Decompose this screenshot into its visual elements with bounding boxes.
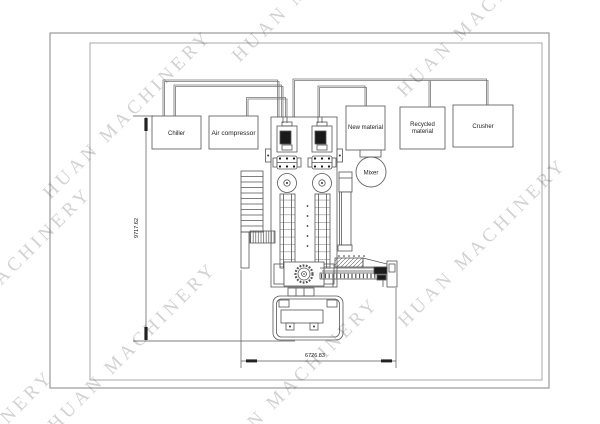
side-column bbox=[338, 172, 352, 251]
pipe-chiller-b2 bbox=[176, 87, 284, 118]
recycled-material-label-line2: material bbox=[412, 129, 433, 135]
machine-base bbox=[273, 288, 343, 340]
barrel-column-left bbox=[280, 194, 295, 268]
drive-wheel-right bbox=[313, 174, 332, 193]
new-material-label: New material bbox=[348, 125, 383, 131]
chiller-label: Chiller bbox=[168, 131, 185, 137]
access-ladder bbox=[241, 171, 275, 268]
drive-wheel-left bbox=[278, 174, 297, 193]
plan-layout-screenshot: Chiller Air compressor New material Recy… bbox=[0, 0, 600, 424]
recycled-material-box: Recycled material bbox=[400, 107, 445, 149]
air-compressor-label: Air compressor bbox=[212, 131, 256, 137]
coupling-left bbox=[273, 156, 301, 169]
mixer-unit: Mixer bbox=[356, 150, 386, 187]
dim-tick bbox=[381, 359, 392, 362]
dimension-vertical-value: 9717.62 bbox=[134, 218, 140, 238]
pipe-air-compressor bbox=[247, 98, 286, 118]
mixer-label: Mixer bbox=[364, 171, 379, 177]
new-material-box: New material bbox=[346, 106, 385, 150]
dim-tick bbox=[144, 327, 147, 340]
pipe-chiller-a bbox=[163, 80, 278, 117]
dimension-horizontal-value: 6726.83 bbox=[305, 353, 325, 359]
mixer-pedestal bbox=[360, 150, 381, 157]
air-compressor-box: Air compressor bbox=[209, 116, 258, 149]
pipe-chiller-b bbox=[174, 85, 282, 117]
coupling-right bbox=[308, 156, 336, 169]
crusher-box: Crusher bbox=[453, 105, 513, 147]
chiller-box: Chiller bbox=[152, 116, 201, 149]
cad-plan-drawing: Chiller Air compressor New material Recy… bbox=[0, 0, 600, 424]
dim-tick bbox=[144, 118, 147, 131]
barrel-column-right bbox=[315, 194, 330, 268]
dim-tick bbox=[246, 359, 257, 362]
crusher-label: Crusher bbox=[472, 124, 493, 130]
recycled-material-label-line1: Recycled bbox=[410, 122, 435, 128]
platform-hatch bbox=[250, 231, 275, 243]
